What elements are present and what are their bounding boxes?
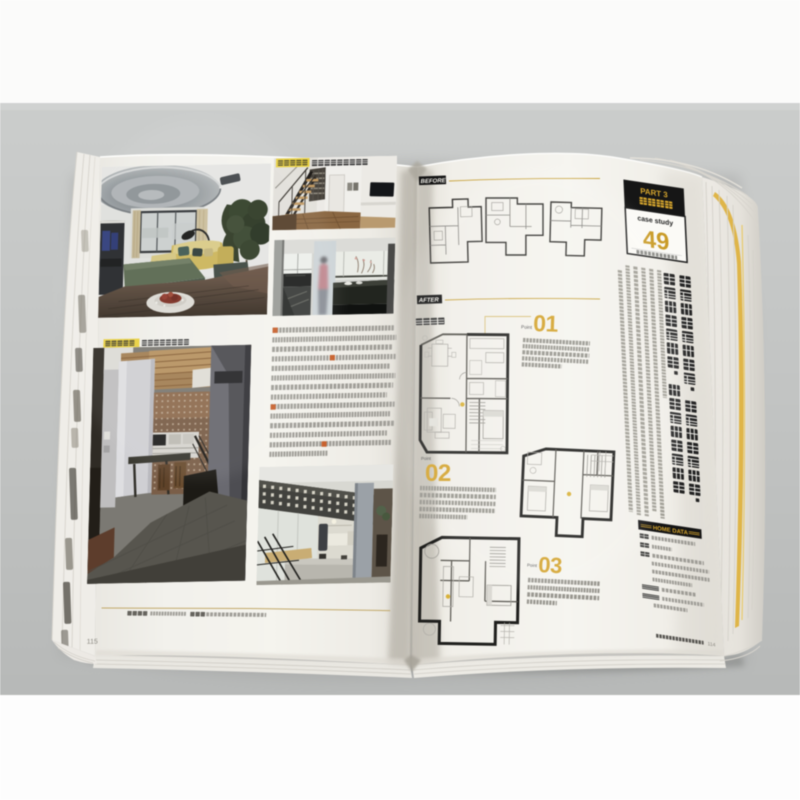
svg-text:BEFORE: BEFORE (421, 178, 447, 185)
svg-text:115: 115 (87, 639, 98, 646)
svg-text:114: 114 (707, 641, 715, 648)
